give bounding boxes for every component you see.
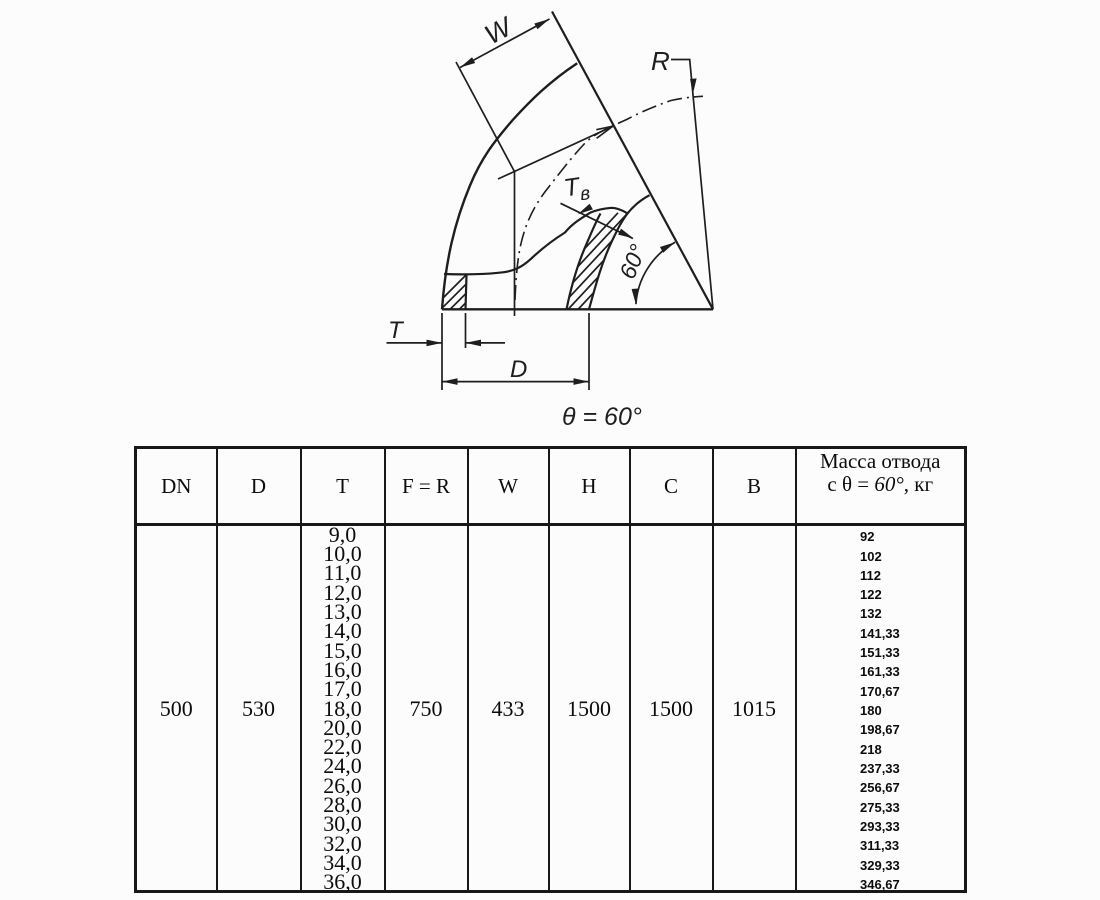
svg-text:Tв: Tв <box>562 171 592 207</box>
svg-text:R: R <box>651 46 670 76</box>
svg-text:W: W <box>480 11 519 51</box>
svg-text:T: T <box>388 317 405 344</box>
svg-text:D: D <box>510 356 527 383</box>
svg-text:60°: 60° <box>614 241 651 283</box>
svg-text:θ = 60°: θ = 60° <box>562 403 642 431</box>
